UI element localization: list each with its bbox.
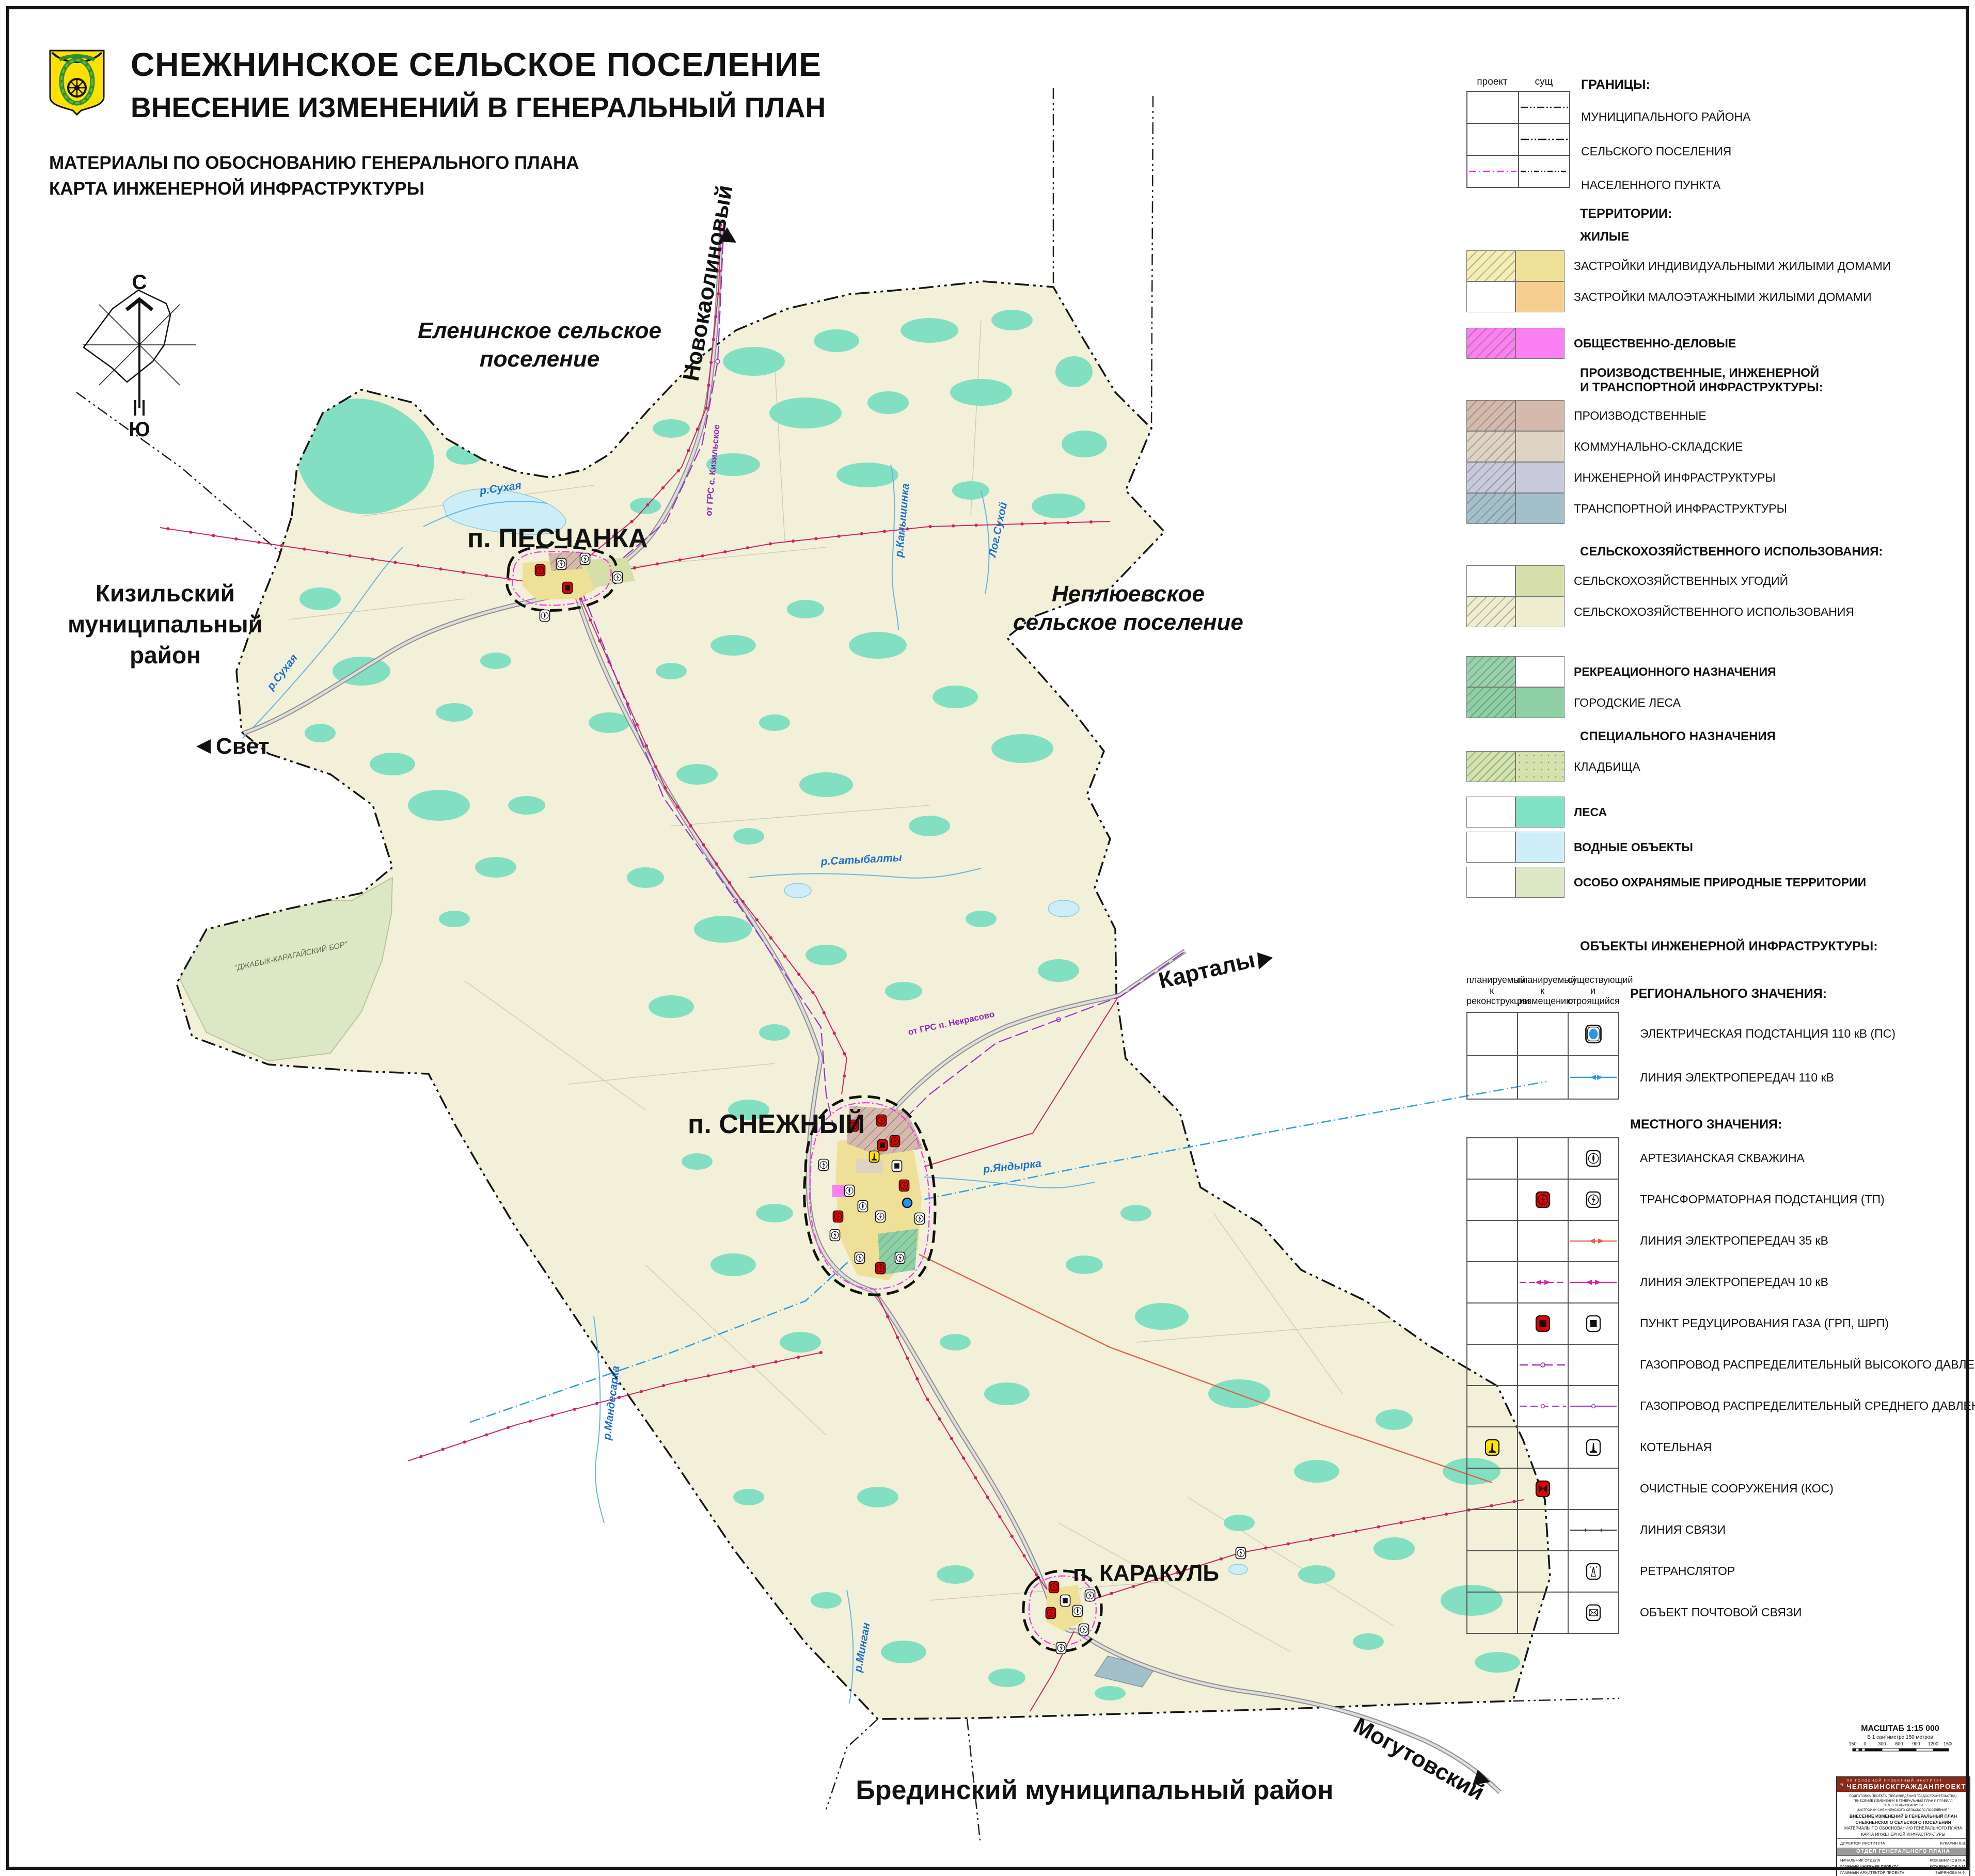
borders-row-3: НАСЕЛЕННОГО ПУНКТА — [1581, 178, 1750, 192]
lep-35-line-icon — [1570, 1237, 1617, 1245]
label-kizilsky-1: Кизильский — [96, 580, 235, 607]
legend-panel: проект сущ — [1466, 76, 1947, 1634]
substation-110kv — [903, 1198, 912, 1207]
label-peschanka: п. ПЕСЧАНКА — [467, 523, 648, 553]
lep-10-planned-icon — [1520, 1279, 1566, 1286]
territory-row-ugod: СЕЛЬСКОХОЗЯЙСТВЕННЫХ УГОДИЙ — [1466, 565, 1947, 596]
territory-row-lesa: ЛЕСА — [1466, 797, 1947, 828]
borders-col-project: проект — [1466, 76, 1518, 88]
territory-row-rekr: РЕКРЕАЦИОННОГО НАЗНАЧЕНИЯ — [1466, 656, 1947, 687]
stamp-doc-3: МАТЕРИАЛЫ ПО ОБОСНОВАНИЮ ГЕНЕРАЛЬНОГО ПЛ… — [1839, 1825, 1967, 1832]
objects-row-ps: ЭЛЕКТРИЧЕСКАЯ ПОДСТАНЦИЯ 110 кВ (ПС) — [1640, 1027, 1895, 1041]
institute-logo-icon — [1840, 1779, 1843, 1790]
objects-row-lep10: ЛИНИЯ ЭЛЕКТРОПЕРЕДАЧ 10 кВ — [1640, 1261, 1975, 1302]
stamp-role-name: КОЖЕВНИКОВ А.М. — [1930, 1864, 1966, 1870]
stamp-director-name: КУКАРИН В.В. — [1940, 1841, 1966, 1846]
territory-row-transp: ТРАНСПОРТНОЙ ИНФРАСТРУКТУРЫ — [1466, 493, 1947, 524]
territory-row-mzhs: ЗАСТРОЙКИ МАЛОЭТАЖНЫМИ ЖИЛЫМИ ДОМАМИ — [1466, 281, 1947, 312]
stamp-director-label: ДИРЕКТОР ИНСТИТУТА — [1840, 1841, 1885, 1846]
territories-title: ТЕРРИТОРИИ: — [1580, 206, 1947, 221]
scale-bar: 150 0 300 600 900 1200 1500 — [1848, 1740, 1952, 1758]
lep-110-line-icon — [1570, 1073, 1617, 1082]
compass-north-label: С — [132, 271, 147, 294]
objects-row-retr: РЕТРАНСЛЯТОР — [1640, 1550, 1975, 1592]
tp-planned-icon — [1535, 1191, 1551, 1209]
objects-row-lep35: ЛИНИЯ ЭЛЕКТРОПЕРЕДАЧ 35 кВ — [1640, 1220, 1975, 1261]
compass-south-label: Ю — [129, 418, 150, 441]
gas-high-line-icon — [1520, 1361, 1566, 1369]
label-bredinsky: Брединский муниципальный район — [856, 1775, 1333, 1805]
objects-row-tp: ТРАНСФОРМАТОРНАЯ ПОДСТАНЦИЯ (ТП) — [1640, 1179, 1975, 1220]
label-kizilsky-2: муниципальный — [68, 611, 263, 638]
objects-row-lep110: ЛИНИЯ ЭЛЕКТРОПЕРЕДАЧ 110 кВ — [1640, 1071, 1895, 1085]
direction-arrow-icon — [196, 739, 211, 754]
direction-arrow-icon — [1257, 952, 1273, 969]
borders-row-1: МУНИЦИПАЛЬНОГО РАЙОНА — [1581, 110, 1750, 124]
objects-row-kos: ОЧИСТНЫЕ СООРУЖЕНИЯ (КОС) — [1640, 1468, 1975, 1509]
objects-row-svyaz: ЛИНИЯ СВЯЗИ — [1640, 1509, 1975, 1550]
borders-title: ГРАНИЦЫ: — [1581, 77, 1750, 92]
stamp-doc-1: ВНЕСЕНИЕ ИЗМЕНЕНИЙ В ГЕНЕРАЛЬНЫЙ ПЛАН — [1839, 1813, 1967, 1819]
page-subtitle-2: КАРТА ИНЖЕНЕРНОЙ ИНФРАСТРУКТУРЫ — [49, 179, 424, 199]
line-np-project — [1469, 169, 1516, 174]
tp-existing-icon — [1586, 1191, 1601, 1209]
legend-territories: ТЕРРИТОРИИ: ЖИЛЫЕ ЗАСТРОЙКИ ИНДИВИДУАЛЬН… — [1466, 206, 1947, 898]
kos-planned-icon — [1535, 1480, 1551, 1498]
territory-row-gorlesa: ГОРОДСКИЕ ЛЕСА — [1466, 687, 1947, 718]
objects-row-well: АРТЕЗИАНСКАЯ СКВАЖИНА — [1640, 1137, 1975, 1179]
scale-title: МАСШТАБ 1:15 000 — [1848, 1724, 1952, 1734]
stamp-role-label: ГЛАВНЫЙ ИНЖЕНЕР ПРОЕКТА — [1840, 1864, 1904, 1870]
page-title: СНЕЖНИНСКОЕ СЕЛЬСКОЕ ПОСЕЛЕНИЕ — [131, 45, 821, 84]
territories-zhilye: ЖИЛЫЕ — [1580, 230, 1947, 244]
label-karakul: п. КАРАКУЛЬ — [1073, 1561, 1219, 1586]
post-office-icon — [1586, 1604, 1601, 1621]
svg-text:150: 150 — [1848, 1741, 1856, 1746]
legend-objects: ОБЪЕКТЫ ИНЖЕНЕРНОЙ ИНФРАСТРУКТУРЫ: плани… — [1466, 939, 1947, 1634]
label-neplyuevskoe-1: Неплюевское — [1052, 581, 1205, 607]
stamp-doc-4: КАРТА ИНЖЕНЕРНОЙ ИНФРАСТРУКТУРЫ — [1839, 1832, 1967, 1838]
objects-row-boiler: КОТЕЛЬНАЯ — [1640, 1426, 1975, 1468]
label-snezhny: п. СНЕЖНЫЙ — [688, 1109, 865, 1139]
svg-text:1200: 1200 — [1928, 1741, 1938, 1746]
objects-regional-title: РЕГИОНАЛЬНОГО ЗНАЧЕНИЯ: — [1630, 987, 1827, 1001]
territory-row-izhs: ЗАСТРОЙКИ ИНДИВИДУАЛЬНЫМИ ЖИЛЫМИ ДОМАМИ — [1466, 250, 1947, 281]
stamp-role-label: ГЛАВНЫЙ АРХИТЕКТОР ПРОЕКТА — [1840, 1870, 1904, 1876]
svg-text:300: 300 — [1878, 1741, 1886, 1746]
compass-rose: С Ю — [83, 271, 196, 441]
territory-row-kommun: КОММУНАЛЬНО-СКЛАДСКИЕ — [1466, 431, 1947, 462]
scale-subtitle: В 1 сантиметре 150 метров — [1848, 1735, 1952, 1740]
retranslator-icon — [1586, 1563, 1601, 1580]
label-kizilsky-3: район — [130, 642, 201, 669]
lep-10-existing-icon — [1570, 1279, 1617, 1286]
territory-row-oopt: ОСОБО ОХРАНЯМЫЕ ПРИРОДНЫЕ ТЕРРИТОРИИ — [1466, 867, 1947, 898]
grp-planned-icon — [1535, 1315, 1551, 1332]
stamp-role-name: ЗЫРЯНОВА Н.Ф. — [1930, 1870, 1966, 1876]
label-eleninskoe-2: поселение — [480, 346, 599, 372]
gas-mid-planned-icon — [1520, 1403, 1566, 1410]
stamp-department: ОТДЕЛ ГЕНЕРАЛЬНОГО ПЛАНА — [1837, 1848, 1969, 1855]
objects-row-grp: ПУНКТ РЕДУЦИРОВАНИЯ ГАЗА (ГРП, ШРП) — [1640, 1302, 1975, 1344]
territory-row-kladb: КЛАДБИЩА — [1466, 751, 1947, 782]
territories-spec-title: СПЕЦИАЛЬНОГО НАЗНАЧЕНИЯ — [1580, 729, 1947, 744]
line-municipal-boundary — [1521, 105, 1568, 110]
objects-col-3: существующий и строящийся — [1568, 975, 1618, 1007]
stamp-org-line1: ПК ГОЛОВНОЙ ПРОЕКТНЫЙ ИНСТИТУТ — [1846, 1779, 1966, 1783]
legend-borders: проект сущ — [1466, 76, 1947, 192]
objects-row-gas-high: ГАЗОПРОВОД РАСПРЕДЕЛИТЕЛЬНЫЙ ВЫСОКОГО ДА… — [1640, 1344, 1975, 1385]
stamp-prep-2: "ВНЕСЕНИЕ ИЗМЕНЕНИЙ В ГЕНЕРАЛЬНЫЙ ПЛАН И… — [1839, 1799, 1967, 1808]
svg-text:900: 900 — [1912, 1741, 1920, 1746]
territories-selhoz-title: СЕЛЬСКОХОЗЯЙСТВЕННОГО ИСПОЛЬЗОВАНИЯ: — [1580, 545, 1947, 559]
label-road-mogutovsky: Могутовский — [1349, 1713, 1489, 1805]
coat-of-arms — [49, 50, 105, 116]
territory-row-od: ОБЩЕСТВЕННО-ДЕЛОВЫЕ — [1466, 328, 1947, 359]
objects-local-title: МЕСТНОГО ЗНАЧЕНИЯ: — [1630, 1117, 1947, 1132]
stamp-prep-3: ЗАСТРОЙКИ СНЕЖНЕНСКОГО СЕЛЬСКОГО ПОСЕЛЕН… — [1839, 1808, 1967, 1813]
label-eleninskoe-1: Еленинское сельское — [418, 318, 661, 343]
ps-110-icon — [1585, 1024, 1602, 1044]
grp-existing-icon — [1586, 1315, 1601, 1332]
territory-row-inzh: ИНЖЕНЕРНОЙ ИНФРАСТРУКТУРЫ — [1466, 462, 1947, 493]
svg-text:0: 0 — [1863, 1741, 1866, 1746]
boiler-existing-icon — [1586, 1439, 1601, 1456]
map-sheet: п. ПЕСЧАНКА п. СНЕЖНЫЙ п. КАРАКУЛЬ Елени… — [0, 0, 1975, 1876]
borders-col-exist: сущ — [1518, 76, 1570, 88]
page-subtitle-1: МАТЕРИАЛЫ ПО ОБОСНОВАНИЮ ГЕНЕРАЛЬНОГО ПЛ… — [49, 153, 579, 173]
territory-row-prod: ПРОИЗВОДСТВЕННЫЕ — [1466, 400, 1947, 431]
stamp-org-line2: ЧЕЛЯБИНСКГРАЖДАНПРОЕКТ — [1846, 1783, 1966, 1790]
gas-mid-existing-icon — [1570, 1403, 1617, 1410]
stamp-role-label: НАЧАЛЬНИК ОТДЕЛА — [1840, 1857, 1904, 1864]
page-title-2: ВНЕСЕНИЕ ИЗМЕНЕНИЙ В ГЕНЕРАЛЬНЫЙ ПЛАН — [131, 91, 826, 124]
line-settlement-boundary — [1521, 137, 1568, 142]
objects-row-post: ОБЪЕКТ ПОЧТОВОЙ СВЯЗИ — [1640, 1592, 1975, 1633]
territory-row-vodn: ВОДНЫЕ ОБЪЕКТЫ — [1466, 832, 1947, 863]
borders-row-2: СЕЛЬСКОГО ПОСЕЛЕНИЯ — [1581, 145, 1750, 158]
objects-title: ОБЪЕКТЫ ИНЖЕНЕРНОЙ ИНФРАСТРУКТУРЫ: — [1580, 939, 1947, 954]
stamp-doc-2: СНЕЖНЕНСКОГО СЕЛЬСКОГО ПОСЕЛЕНИЯ — [1839, 1819, 1967, 1825]
title-stamp: ПК ГОЛОВНОЙ ПРОЕКТНЫЙ ИНСТИТУТ ЧЕЛЯБИНСК… — [1836, 1776, 1970, 1876]
stamp-role-name: КОЖЕВНИКОВ М.А. — [1930, 1857, 1966, 1864]
label-road-svet: Свет — [216, 734, 270, 759]
svg-text:600: 600 — [1895, 1741, 1903, 1746]
label-road-kartaly: Карталы — [1156, 947, 1257, 993]
scale-block: МАСШТАБ 1:15 000 В 1 сантиметре 150 метр… — [1848, 1724, 1952, 1760]
objects-col-2: планируемый к размещению — [1517, 975, 1568, 1007]
artesian-well-icon — [1586, 1150, 1601, 1167]
label-neplyuevskoe-2: сельское поселение — [1013, 610, 1243, 635]
comm-line-icon — [1570, 1528, 1617, 1533]
line-np-exist — [1521, 169, 1568, 174]
objects-row-gas-mid: ГАЗОПРОВОД РАСПРЕДЕЛИТЕЛЬНЫЙ СРЕДНЕГО ДА… — [1640, 1385, 1975, 1426]
svg-text:1500: 1500 — [1944, 1741, 1952, 1746]
objects-col-1: планируемый к реконструкции — [1466, 975, 1517, 1007]
territories-prod-header: ПРОИЗВОДСТВЕННЫЕ, ИНЖЕНЕРНОЙ И ТРАНСПОРТ… — [1580, 366, 1947, 395]
territory-row-selhoz: СЕЛЬСКОХОЗЯЙСТВЕННОГО ИСПОЛЬЗОВАНИЯ — [1466, 596, 1947, 627]
stamp-prep-1: ПОДГОТОВКА ПРОЕКТА (ПРОИЗВЕДЕНИЯ ГРАДОСТ… — [1839, 1794, 1967, 1799]
boiler-reconstruction-icon — [1484, 1439, 1500, 1456]
settlement-terrain — [155, 258, 1575, 1755]
